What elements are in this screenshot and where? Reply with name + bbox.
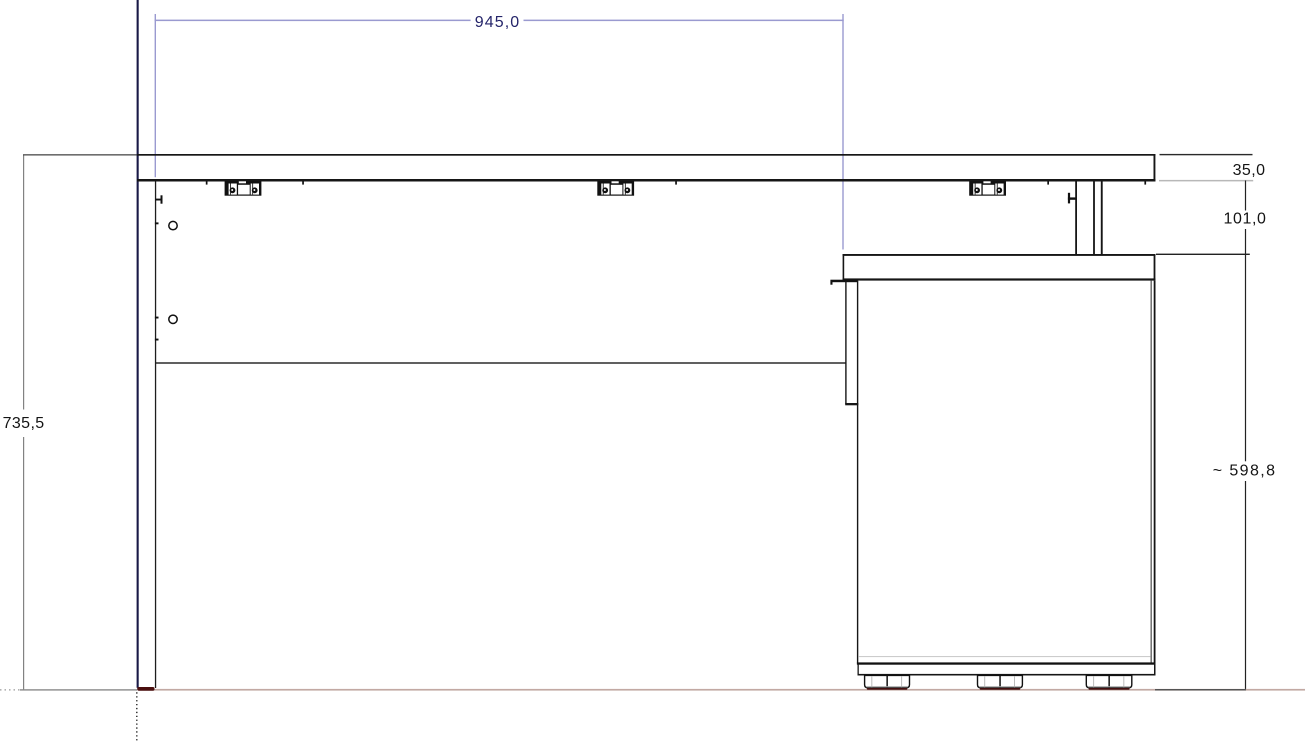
svg-text:945,0: 945,0 (475, 14, 521, 31)
svg-text:~ 598,8: ~ 598,8 (1213, 463, 1277, 480)
svg-text:35,0: 35,0 (1233, 162, 1266, 179)
svg-text:101,0: 101,0 (1223, 211, 1266, 228)
svg-text:735,5: 735,5 (3, 415, 45, 432)
